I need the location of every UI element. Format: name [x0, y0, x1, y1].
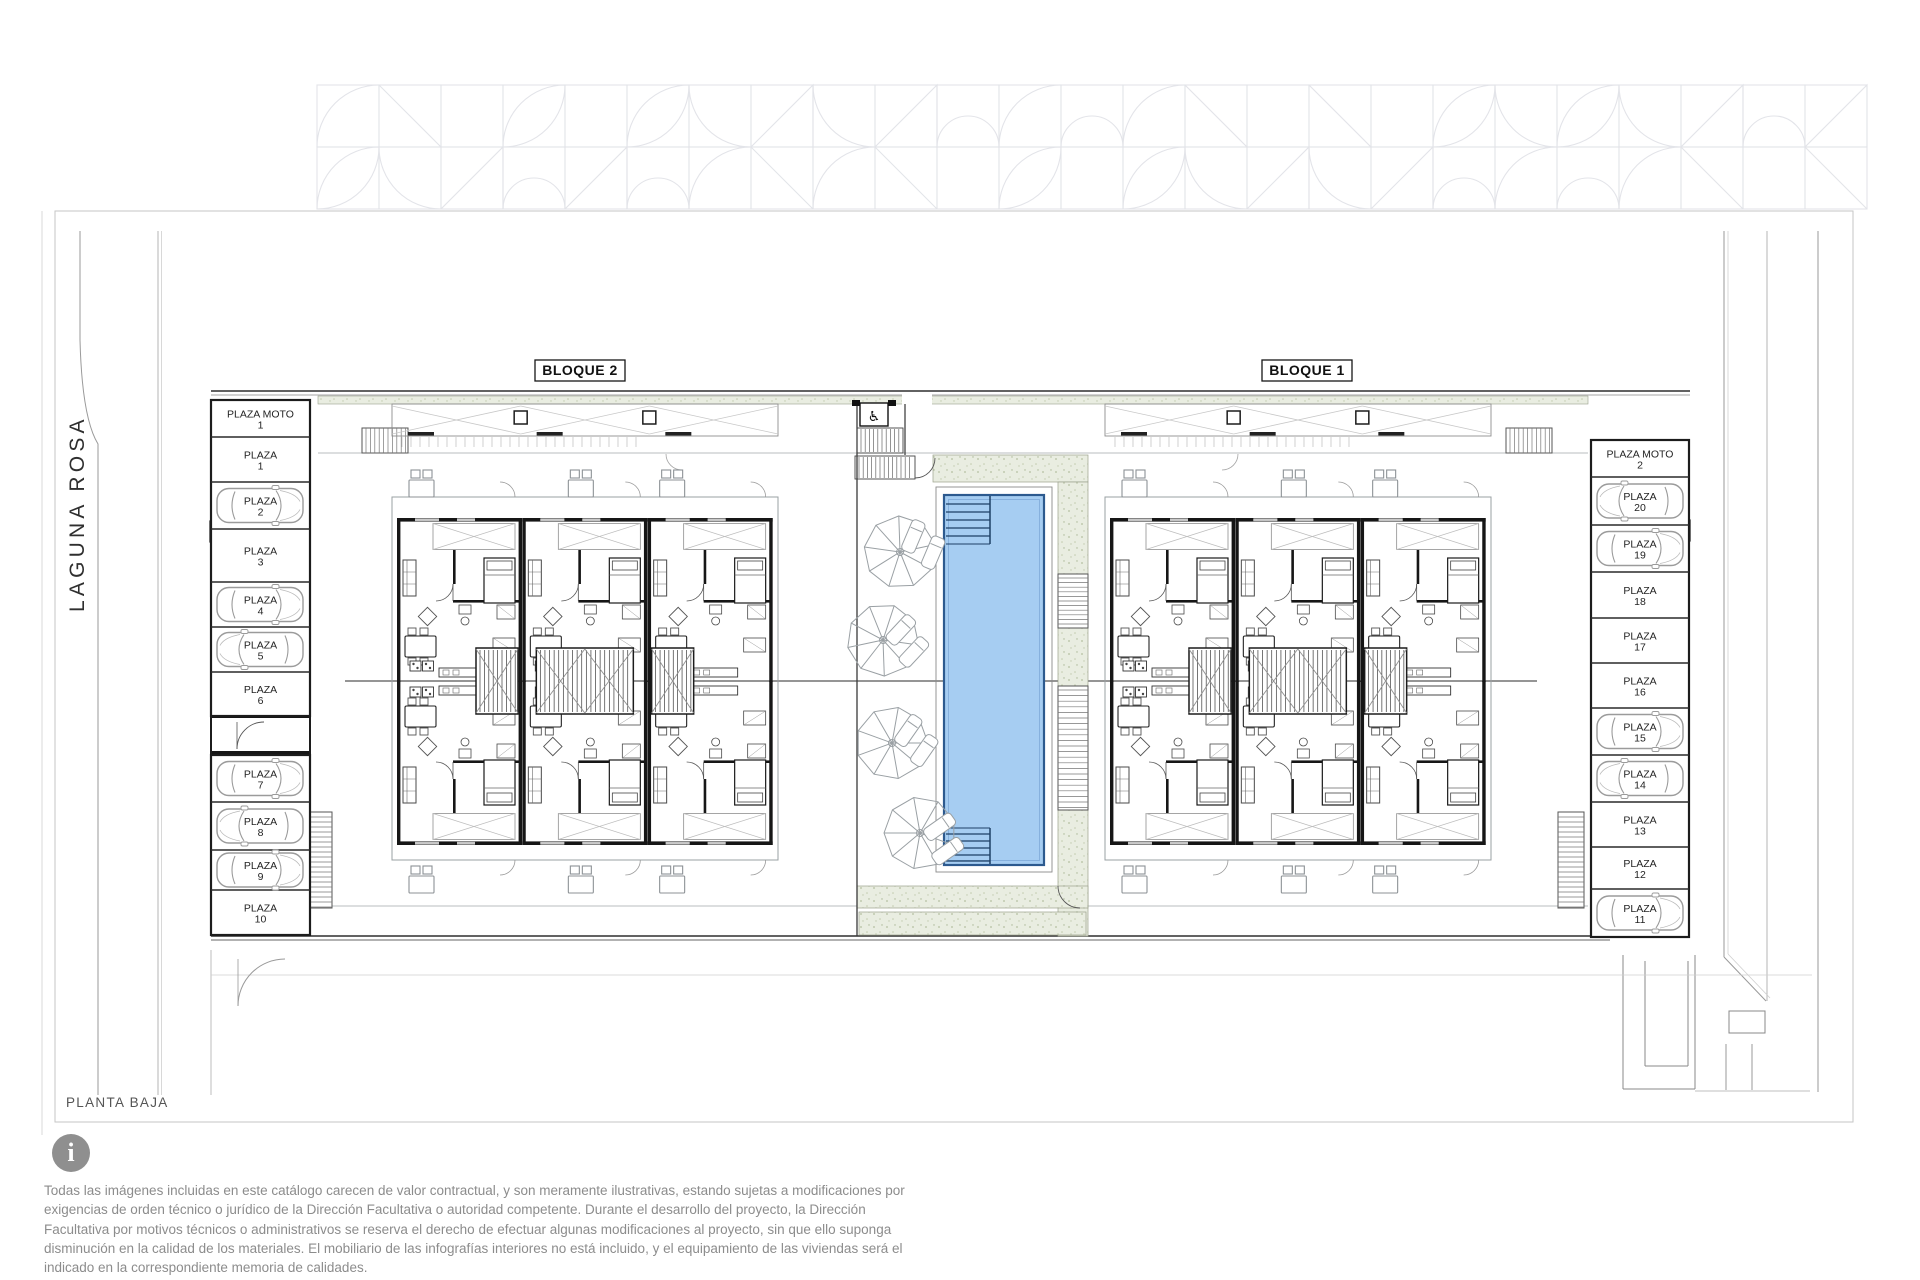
- building-block-1: [1105, 404, 1491, 893]
- svg-text:9: 9: [258, 871, 264, 883]
- parking-stall-15: PLAZA15: [1597, 712, 1683, 752]
- svg-text:14: 14: [1634, 780, 1646, 792]
- parking-stall-8: PLAZA8: [217, 806, 303, 846]
- parking-stall-14: PLAZA14: [1597, 759, 1683, 799]
- svg-text:19: 19: [1634, 550, 1646, 562]
- decorative-pattern-band: [317, 85, 1867, 209]
- svg-text:18: 18: [1634, 596, 1646, 608]
- parking-stall-4: PLAZA4: [217, 585, 303, 625]
- plan-page: PLAZA MOTO1PLAZA1PLAZA2PLAZA3PLAZA4PLAZA…: [0, 0, 1920, 1280]
- parasol-lounger-icon: [858, 708, 939, 779]
- svg-text:6: 6: [258, 695, 264, 707]
- block2-label: BLOQUE 2: [535, 360, 625, 381]
- svg-text:13: 13: [1634, 826, 1646, 838]
- info-icon-glyph: i: [67, 1138, 74, 1168]
- svg-text:17: 17: [1634, 642, 1646, 654]
- street-label: LAGUNA ROSA: [66, 415, 89, 612]
- info-icon: i: [52, 1134, 90, 1172]
- parking-column-right: PLAZA MOTO2PLAZA20PLAZA19PLAZA18PLAZA17P…: [1591, 440, 1689, 937]
- svg-text:12: 12: [1634, 869, 1646, 881]
- building-block-2: [392, 404, 778, 893]
- parking-stall-20: PLAZA20: [1597, 481, 1683, 521]
- parking-stall-11: PLAZA11: [1597, 893, 1683, 933]
- parking-stall-5: PLAZA5: [217, 630, 303, 670]
- sheet-title: PLANTA BAJA: [66, 1095, 169, 1110]
- block2-label-text: BLOQUE 2: [542, 362, 618, 378]
- svg-text:8: 8: [258, 827, 264, 839]
- parasol-lounger-icon: [860, 507, 954, 593]
- parking-stall-9: PLAZA9: [217, 850, 303, 890]
- svg-text:1: 1: [258, 420, 264, 432]
- disclaimer: i Todas las imágenes incluidas en este c…: [44, 1134, 924, 1277]
- svg-text:3: 3: [258, 557, 264, 569]
- svg-text:11: 11: [1635, 914, 1646, 926]
- disclaimer-text: Todas las imágenes incluidas en este cat…: [44, 1181, 906, 1277]
- block1-label-text: BLOQUE 1: [1269, 362, 1345, 378]
- svg-text:1: 1: [258, 461, 264, 473]
- svg-text:16: 16: [1634, 687, 1646, 699]
- parking-stall-19: PLAZA19: [1597, 529, 1683, 569]
- wheelchair-icon: ♿: [868, 409, 881, 425]
- parking-column-left: PLAZA MOTO1PLAZA1PLAZA2PLAZA3PLAZA4PLAZA…: [211, 400, 310, 935]
- svg-text:5: 5: [258, 651, 264, 663]
- svg-text:20: 20: [1634, 502, 1646, 514]
- parking-stall-2: PLAZA2: [217, 486, 303, 526]
- svg-text:10: 10: [255, 914, 267, 926]
- svg-text:2: 2: [258, 507, 264, 519]
- svg-text:2: 2: [1637, 460, 1643, 472]
- courtyard-pool-area: ♿: [845, 400, 1088, 936]
- parking-stall-7: PLAZA7: [217, 759, 303, 799]
- svg-text:15: 15: [1634, 733, 1646, 745]
- site-plan-drawing: PLAZA MOTO1PLAZA1PLAZA2PLAZA3PLAZA4PLAZA…: [0, 0, 1920, 1280]
- block1-label: BLOQUE 1: [1262, 360, 1352, 381]
- parasol-lounger-icon: [845, 600, 935, 682]
- svg-text:4: 4: [258, 606, 264, 618]
- svg-text:7: 7: [258, 780, 264, 792]
